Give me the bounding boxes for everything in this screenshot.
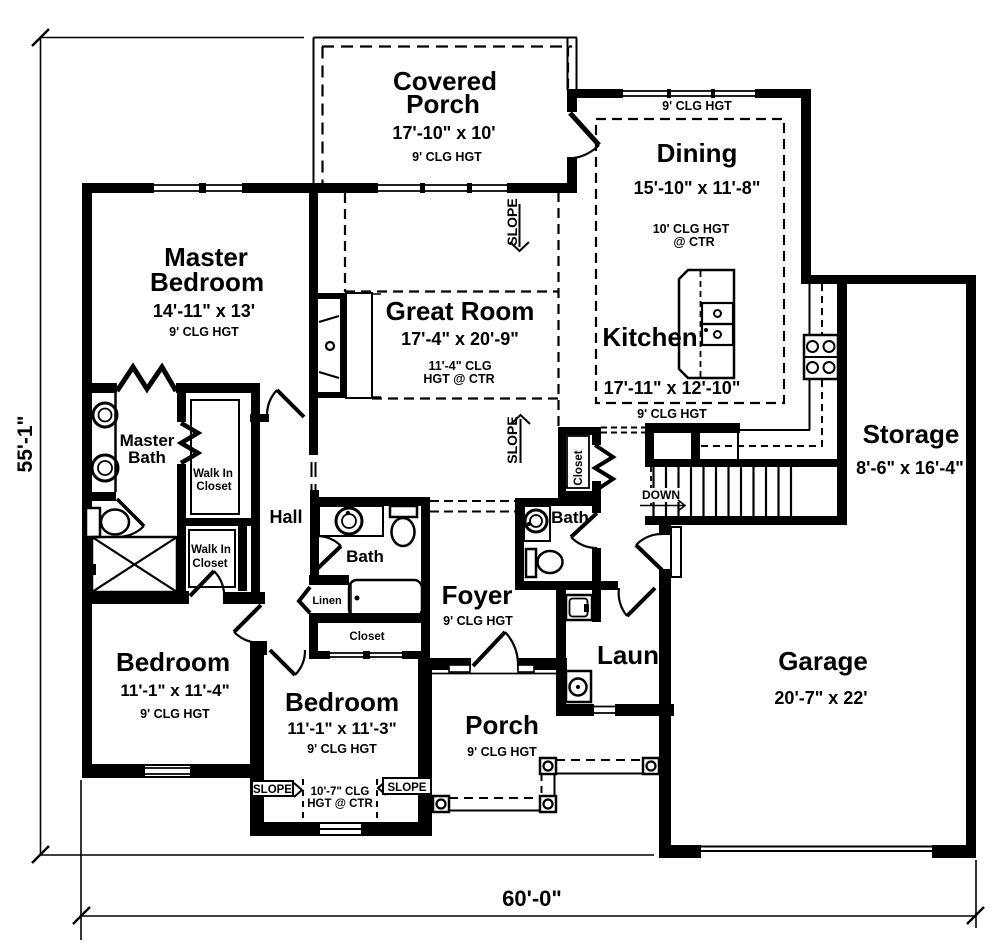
svg-text:9' CLG HGT: 9' CLG HGT	[169, 325, 239, 339]
svg-text:Porch: Porch	[465, 710, 539, 740]
svg-text:55'-1": 55'-1"	[14, 416, 37, 473]
svg-text:Bedroom: Bedroom	[285, 687, 399, 717]
svg-text:Laun: Laun	[597, 640, 659, 670]
svg-text:17'-4" x 20'-9": 17'-4" x 20'-9"	[401, 329, 519, 349]
svg-text:Foyer: Foyer	[442, 580, 513, 610]
svg-text:Bath: Bath	[346, 547, 384, 566]
svg-text:@ CTR: @ CTR	[673, 235, 714, 249]
svg-text:Closet: Closet	[192, 558, 227, 570]
svg-text:9' CLG HGT: 9' CLG HGT	[140, 707, 210, 721]
svg-text:Bedroom: Bedroom	[150, 267, 264, 297]
svg-text:DOWN: DOWN	[642, 488, 680, 502]
svg-text:Walk In: Walk In	[193, 468, 233, 480]
svg-text:9' CLG HGT: 9' CLG HGT	[662, 99, 732, 113]
svg-text:Hall: Hall	[269, 507, 302, 527]
svg-text:Closet: Closet	[349, 631, 384, 643]
svg-text:9' CLG HGT: 9' CLG HGT	[307, 742, 377, 756]
svg-text:SLOPE: SLOPE	[388, 782, 427, 794]
svg-text:Great Room: Great Room	[386, 296, 535, 326]
svg-text:20'-7" x 22': 20'-7" x 22'	[774, 688, 867, 708]
svg-text:10' CLG HGT: 10' CLG HGT	[653, 222, 730, 236]
svg-text:17'-11" x 12'-10": 17'-11" x 12'-10"	[604, 378, 741, 398]
svg-text:Bedroom: Bedroom	[116, 647, 230, 677]
svg-text:Walk In: Walk In	[191, 544, 231, 556]
svg-text:HGT @ CTR: HGT @ CTR	[423, 372, 494, 386]
svg-text:9' CLG HGT: 9' CLG HGT	[443, 614, 513, 628]
svg-text:9' CLG HGT: 9' CLG HGT	[412, 150, 482, 164]
svg-text:Dining: Dining	[657, 138, 738, 168]
svg-text:60'-0": 60'-0"	[502, 886, 562, 911]
svg-text:11'-1" x 11'-3": 11'-1" x 11'-3"	[287, 719, 396, 738]
svg-text:11'-4" CLG: 11'-4" CLG	[428, 359, 491, 373]
svg-text:Porch: Porch	[406, 89, 480, 119]
svg-text:SLOPE: SLOPE	[253, 784, 292, 796]
svg-text:HGT @ CTR: HGT @ CTR	[307, 798, 373, 810]
svg-text:Closet: Closet	[573, 450, 585, 485]
svg-text:Kitchen: Kitchen	[602, 322, 697, 352]
svg-text:Bath: Bath	[551, 508, 589, 527]
svg-text:Storage: Storage	[863, 419, 960, 449]
svg-text:17'-10" x 10': 17'-10" x 10'	[392, 123, 495, 143]
svg-text:15'-10" x 11'-8": 15'-10" x 11'-8"	[634, 178, 761, 198]
svg-text:9' CLG HGT: 9' CLG HGT	[637, 407, 707, 421]
svg-text:10'-7" CLG: 10'-7" CLG	[311, 786, 370, 798]
svg-text:11'-1" x 11'-4": 11'-1" x 11'-4"	[120, 681, 229, 700]
svg-text:9' CLG HGT: 9' CLG HGT	[467, 745, 537, 759]
svg-text:Garage: Garage	[778, 646, 868, 676]
svg-text:Bath: Bath	[128, 448, 166, 467]
svg-text:Closet: Closet	[196, 481, 231, 493]
svg-text:SLOPE: SLOPE	[504, 198, 520, 245]
svg-text:14'-11" x 13': 14'-11" x 13'	[153, 301, 255, 321]
svg-text:Linen: Linen	[312, 595, 342, 607]
svg-text:8'-6" x 16'-4": 8'-6" x 16'-4"	[856, 458, 964, 478]
